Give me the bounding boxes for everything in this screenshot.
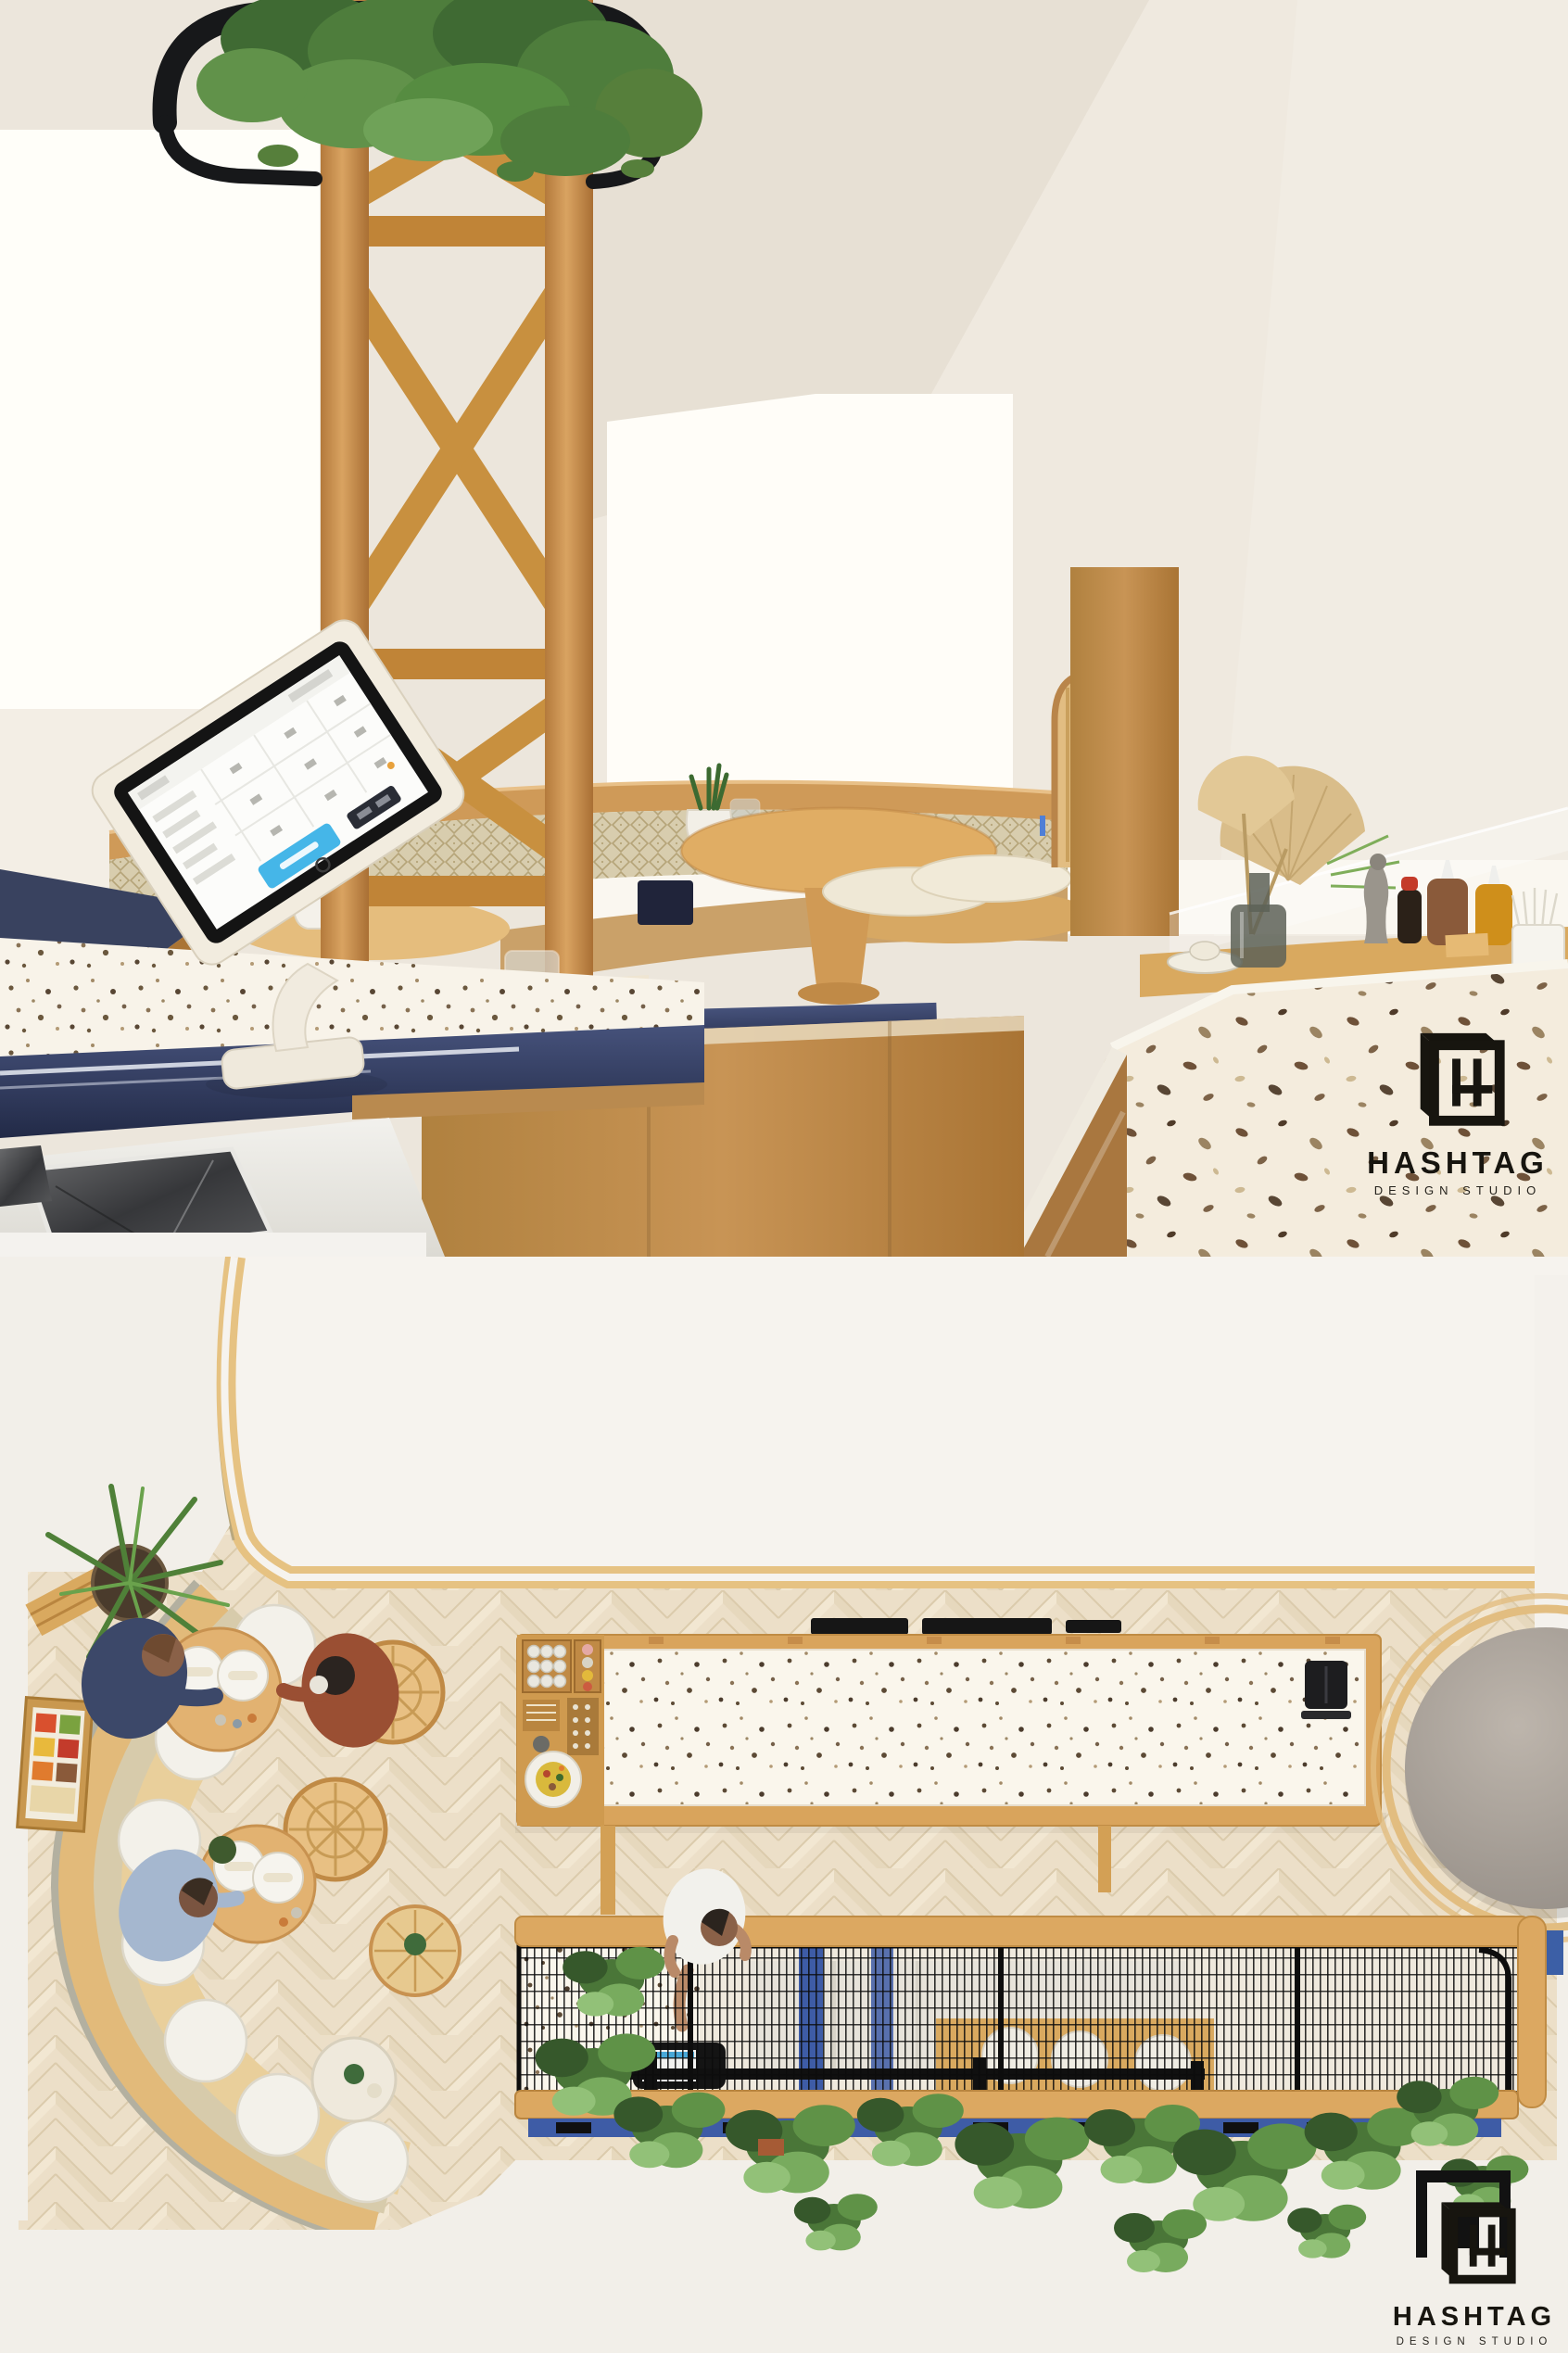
logo-tagline-text: DESIGN STUDIO: [1386, 2337, 1562, 2348]
pepper-grinder: [1364, 867, 1389, 943]
blue-menu-stick: [1040, 816, 1045, 836]
timber-tray: [1445, 933, 1488, 957]
left-window-light: [0, 130, 320, 709]
timber-right-rail: [1518, 1917, 1546, 2107]
hashtag-logo: HASHTAG DESIGN STUDIO: [1356, 1029, 1560, 1196]
logo-brand-text: HASHTAG: [1356, 1147, 1560, 1178]
bar-leg: [1098, 1826, 1111, 1892]
logo-tagline-text: DESIGN STUDIO: [1356, 1184, 1560, 1196]
menu-board: [18, 1698, 94, 1832]
rattan-side-table: [371, 1906, 460, 1995]
barista-cup-station: [517, 1635, 604, 1826]
hashtag-logo-mark: [1426, 2198, 1523, 2295]
terracotta-pot: [758, 2139, 784, 2156]
teacup: [1190, 942, 1220, 960]
hashtag-logo-mark: [1403, 1029, 1512, 1138]
soy-bottle-red-cap: [1401, 877, 1418, 891]
coffee-cup: [310, 1676, 328, 1694]
glass-bottle-vase: [1231, 905, 1286, 968]
logo-brand-text: HASHTAG: [1386, 2304, 1562, 2331]
grinder-top: [533, 1736, 550, 1752]
white-canopy-roof: [215, 1257, 1568, 1577]
soy-sauce-bottle: [1397, 890, 1422, 943]
bar-terrazzo-top: [602, 1650, 1365, 1805]
plan-scene: [0, 1257, 1568, 2353]
small-round-table: [312, 2038, 396, 2121]
espresso-equipment: [811, 1618, 908, 1635]
timber-partition-panel: [1070, 567, 1179, 936]
dark-box: [638, 880, 693, 925]
hashtag-logo: HASHTAG DESIGN STUDIO: [1386, 2198, 1562, 2348]
perspective-scene: [0, 0, 1568, 1257]
plan-view: HASHTAG DESIGN STUDIO: [0, 1257, 1568, 2353]
bar-leg: [601, 1826, 615, 1915]
seasoning-rack: [567, 1698, 599, 1755]
perspective-view: HASHTAG DESIGN STUDIO: [0, 0, 1568, 1257]
espresso-equipment: [1066, 1620, 1121, 1633]
seat-cushion: [912, 855, 1071, 902]
herb-bowl: [209, 1836, 236, 1864]
espresso-equipment: [922, 1618, 1052, 1635]
render-canvas: HASHTAG DESIGN STUDIO: [0, 0, 1568, 2353]
